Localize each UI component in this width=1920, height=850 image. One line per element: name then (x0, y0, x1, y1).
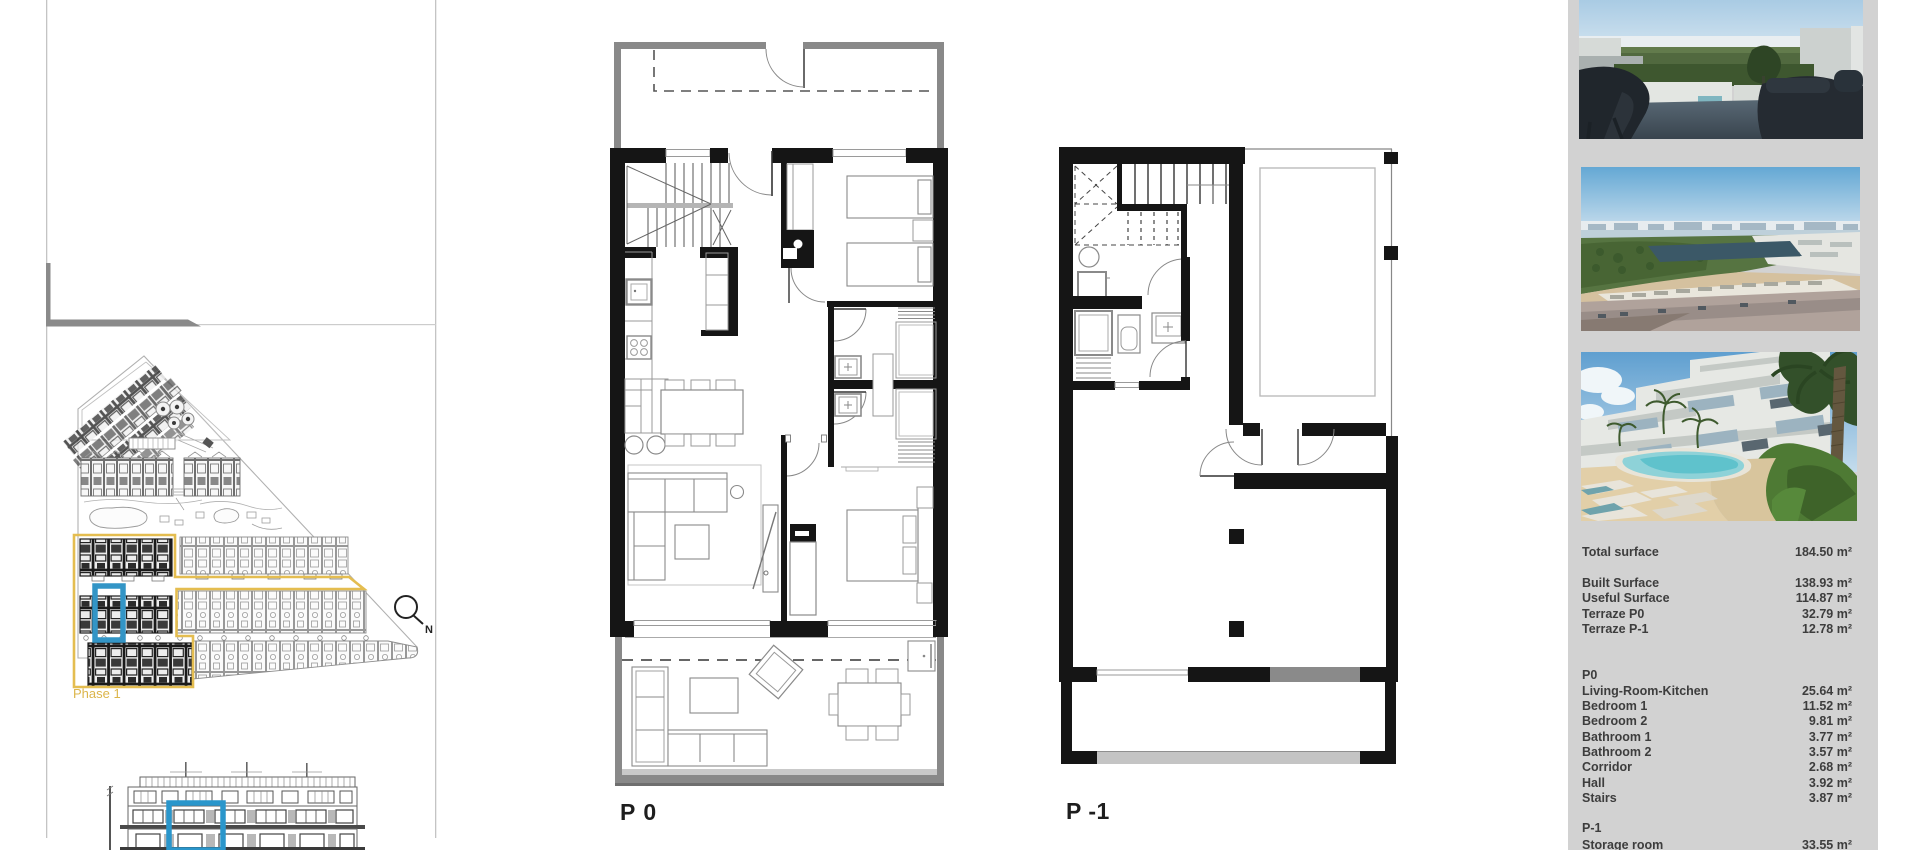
svg-text:25.64 m²: 25.64 m² (1802, 684, 1852, 698)
svg-text:Terraze P-1: Terraze P-1 (1582, 622, 1649, 636)
svg-text:Bedroom 2: Bedroom 2 (1582, 714, 1647, 728)
svg-text:2.68 m²: 2.68 m² (1809, 760, 1852, 774)
svg-text:114.87 m²: 114.87 m² (1796, 591, 1852, 605)
svg-text:Phase 1: Phase 1 (73, 686, 121, 701)
svg-text:P 0: P 0 (620, 799, 657, 825)
svg-text:Hall: Hall (1582, 776, 1605, 790)
svg-text:Terraze P0: Terraze P0 (1582, 607, 1644, 621)
svg-text:11.52 m²: 11.52 m² (1803, 699, 1852, 713)
svg-text:9.81 m²: 9.81 m² (1809, 714, 1852, 728)
svg-text:184.50 m²: 184.50 m² (1795, 545, 1852, 559)
svg-text:138.93 m²: 138.93 m² (1795, 576, 1852, 590)
svg-text:3.87 m²: 3.87 m² (1809, 791, 1852, 805)
svg-text:P0: P0 (1582, 668, 1597, 682)
svg-text:Storage room: Storage room (1582, 838, 1663, 850)
svg-text:12.78 m²: 12.78 m² (1802, 622, 1852, 636)
svg-text:N: N (425, 624, 433, 636)
svg-text:P-1: P-1 (1582, 821, 1602, 835)
svg-text:3.57 m²: 3.57 m² (1809, 745, 1852, 759)
svg-text:Bedroom 1: Bedroom 1 (1582, 699, 1647, 713)
svg-text:3.92 m²: 3.92 m² (1809, 776, 1852, 790)
svg-text:Built Surface: Built Surface (1582, 576, 1659, 590)
svg-text:Total surface: Total surface (1582, 545, 1659, 559)
svg-text:P -1: P -1 (1066, 798, 1110, 824)
svg-text:33.55 m²: 33.55 m² (1802, 838, 1852, 850)
svg-text:Stairs: Stairs (1582, 791, 1617, 805)
svg-text:Living-Room-Kitchen: Living-Room-Kitchen (1582, 684, 1708, 698)
svg-text:3.77 m²: 3.77 m² (1809, 730, 1852, 744)
svg-text:Useful Surface: Useful Surface (1582, 591, 1670, 605)
svg-text:Bathroom 2: Bathroom 2 (1582, 745, 1652, 759)
svg-text:Bathroom 1: Bathroom 1 (1582, 730, 1652, 744)
svg-text:Corridor: Corridor (1582, 760, 1632, 774)
svg-text:32.79 m²: 32.79 m² (1802, 607, 1852, 621)
